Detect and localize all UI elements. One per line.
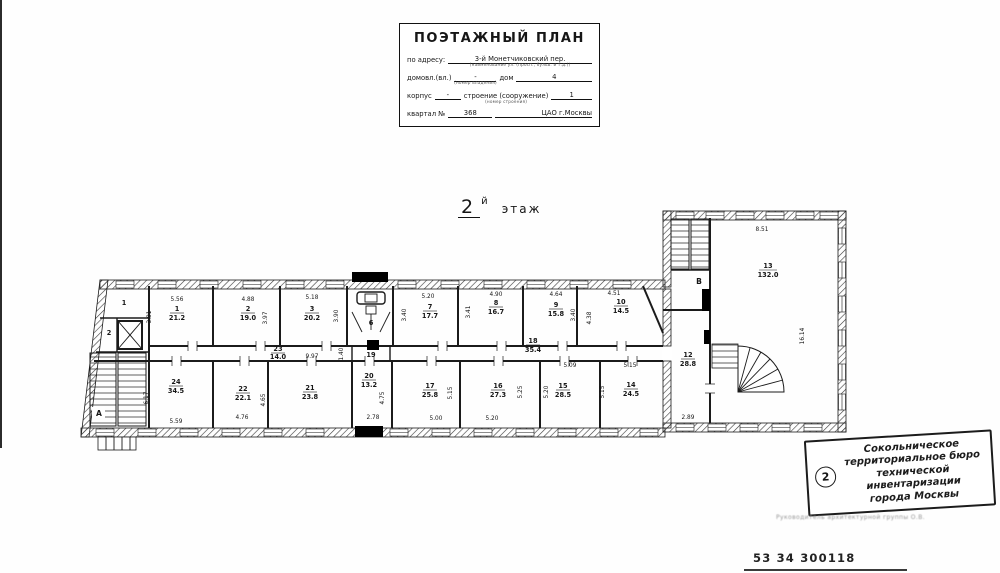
- room-area: 15.8: [548, 310, 565, 318]
- room-number: 6: [369, 319, 374, 327]
- dimension: 4.76: [236, 415, 249, 421]
- dimension: 5.15: [448, 386, 454, 399]
- room-area: 34.5: [168, 387, 185, 395]
- dimension: 5.18: [306, 295, 319, 301]
- room-area: 14.0: [270, 353, 287, 361]
- bti-stamp: 2 Сокольническое территориальное бюро те…: [804, 429, 996, 516]
- room-area: 22.1: [235, 394, 252, 402]
- room-area: 132.0: [758, 271, 779, 279]
- room-number: 7: [428, 303, 433, 311]
- dimension: 2.78: [367, 415, 380, 421]
- room-number: 14: [626, 381, 636, 389]
- dimension: 5.00: [430, 416, 443, 422]
- document-number-underline: [744, 569, 907, 571]
- dimension: 3.97: [263, 311, 269, 324]
- room-number: 16: [493, 382, 503, 390]
- dimension: 4.65: [261, 393, 267, 406]
- dimension: 5.20: [544, 385, 550, 398]
- dimension: 5.20: [486, 416, 499, 422]
- room-area: 23.8: [302, 393, 319, 401]
- room-number: 19: [366, 351, 376, 359]
- room-area: 24.5: [623, 390, 640, 398]
- room-number: 18: [528, 337, 538, 345]
- dimension: 3.40: [402, 308, 408, 321]
- room-area: 35.4: [525, 346, 542, 354]
- dimension: 3.40: [571, 308, 577, 321]
- staircase-b-label: В: [696, 277, 702, 286]
- room-area: 25.8: [422, 391, 439, 399]
- dimension: 9.97: [306, 354, 319, 360]
- room-number: 2: [246, 305, 251, 313]
- room-area: 19.0: [240, 314, 257, 322]
- stamp-badge: 2: [815, 466, 837, 488]
- dimension: 5.15: [600, 385, 606, 398]
- dimension: 4.38: [587, 311, 593, 324]
- room-number: 3: [310, 305, 315, 313]
- dimension: 5.56: [171, 297, 184, 303]
- dimension: 8.51: [756, 227, 769, 233]
- dimension: 5.15: [624, 363, 637, 369]
- dimension: 5.59: [170, 419, 183, 425]
- dimension: 4.64: [550, 292, 563, 298]
- dimension: 6.17: [144, 391, 150, 404]
- room-number: 10: [616, 298, 626, 306]
- room-number: 20: [364, 372, 374, 380]
- dimension: 4.51: [608, 291, 621, 297]
- staircase-a-label: А: [96, 409, 102, 418]
- dimension: 4.75: [380, 391, 386, 404]
- dimension: 1.40: [339, 347, 345, 360]
- room-area: 13.2: [361, 381, 378, 389]
- document-number: 53 34 300118: [753, 551, 855, 565]
- room-area: 17.7: [422, 312, 439, 320]
- room-area: 20.2: [304, 314, 321, 322]
- room-number: 15: [558, 382, 568, 390]
- aux-room-number: 2: [107, 329, 112, 337]
- room-number: 13: [763, 262, 773, 270]
- dimension: 5.09: [564, 363, 577, 369]
- dimension: 16.14: [800, 327, 806, 344]
- aux-room-number: 1: [122, 299, 127, 307]
- outer-walls: [81, 211, 846, 437]
- dimension: 5.20: [422, 294, 435, 300]
- room-number: 17: [425, 382, 435, 390]
- dimension: 3.90: [334, 309, 340, 322]
- room-area: 28.5: [555, 391, 572, 399]
- room-number: 22: [238, 385, 248, 393]
- room-number: 9: [554, 301, 559, 309]
- room-number: 23: [273, 345, 283, 353]
- room-area: 28.8: [680, 360, 697, 368]
- room-number: 12: [683, 351, 693, 359]
- room-area: 16.7: [488, 308, 505, 316]
- dimension: 3.81: [147, 310, 153, 323]
- room-area: 27.3: [490, 391, 507, 399]
- room-number: 24: [171, 378, 181, 386]
- room-area: 21.2: [169, 314, 186, 322]
- dimension: 4.90: [490, 292, 503, 298]
- windows: [96, 212, 846, 436]
- dimension: 3.41: [466, 305, 472, 318]
- dimension: 5.25: [518, 385, 524, 398]
- stair-flight: [118, 353, 146, 426]
- room-number: 21: [305, 384, 315, 392]
- room-number: 8: [494, 299, 499, 307]
- spiral-stair: [712, 344, 784, 392]
- stamp-text: Сокольническое территориальное бюро техн…: [839, 437, 987, 508]
- room-area: 14.5: [613, 307, 630, 315]
- dimension: 4.88: [242, 297, 255, 303]
- signature-line: Руководитель архитектурной группы О.В.: [776, 514, 981, 521]
- room-number: 1: [175, 305, 180, 313]
- interior-walls: [94, 218, 710, 428]
- dimension: 2.89: [682, 415, 695, 421]
